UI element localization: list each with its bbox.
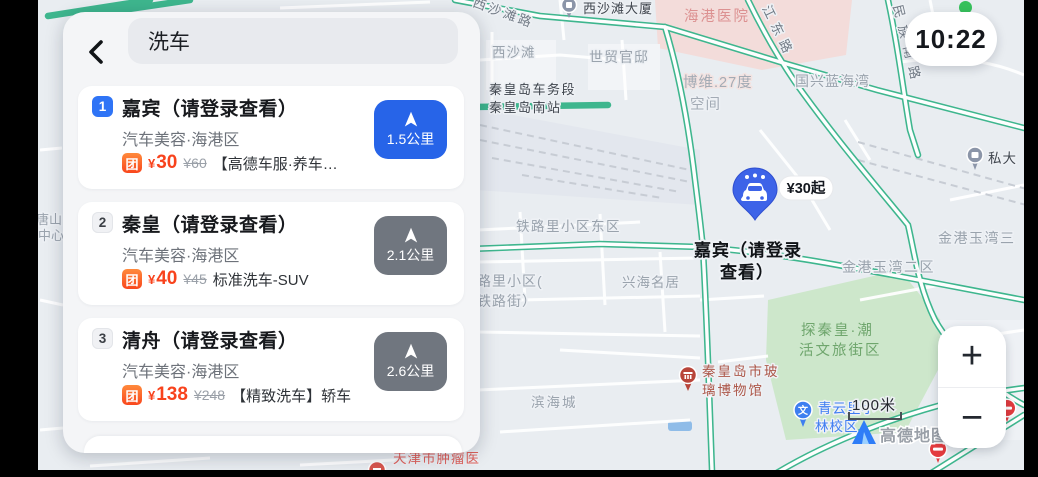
- park-label: 探秦皇·潮: [801, 322, 874, 339]
- search-box: [128, 18, 458, 64]
- poi-label: 秦皇岛车务段: [489, 82, 576, 97]
- selected-poi-label: 查看）: [719, 262, 774, 282]
- rank-badge: 2: [92, 212, 113, 233]
- price: ¥ 30: [148, 152, 177, 174]
- district-label: 滨海城: [531, 395, 578, 410]
- district-label: 金港玉湾三: [938, 230, 1016, 246]
- price-bubble[interactable]: ¥30起: [779, 176, 833, 200]
- result-card[interactable]: 2 秦皇（请登录查看） 汽车美容·海港区 团 ¥ 40 ¥45 标准洗车-SUV: [78, 202, 464, 305]
- groupbuy-badge: 团: [122, 153, 142, 173]
- navigation-arrow-icon: [401, 227, 421, 244]
- navigate-button[interactable]: 2.1公里: [374, 216, 447, 275]
- navigate-button[interactable]: 1.5公里: [374, 100, 447, 159]
- navigate-button[interactable]: 2.6公里: [374, 332, 447, 391]
- park-label: 活文旅街区: [799, 342, 882, 359]
- price-value: 138: [156, 384, 188, 406]
- selected-poi-label: 嘉宾（请登录: [693, 240, 802, 260]
- results-list: 1 嘉宾（请登录查看） 汽车美容·海港区 团 ¥ 30 ¥60 【高德车服·养车…: [78, 86, 464, 421]
- search-input[interactable]: [128, 18, 458, 64]
- museum-label: 璃博物馆: [702, 382, 764, 398]
- hospital-label: 海港医院: [684, 8, 750, 25]
- time-pill: 10:22: [905, 12, 997, 66]
- map-zoom-control: + −: [938, 326, 1006, 448]
- rank-badge: 3: [92, 328, 113, 349]
- poi-title: 秦皇（请登录查看）: [122, 210, 298, 237]
- original-price: ¥60: [183, 155, 206, 171]
- navigation-arrow-icon: [401, 343, 421, 360]
- deal-description: 【高德车服·养车…: [213, 153, 338, 174]
- currency-symbol: ¥: [148, 388, 155, 403]
- poi-label: 西沙滩大厦: [583, 1, 653, 16]
- poi-title: 清舟（请登录查看）: [122, 326, 298, 353]
- museum-label: 秦皇岛市玻: [702, 363, 780, 379]
- district-label: 西沙滩: [492, 45, 536, 60]
- district-label: 路里小区(: [477, 273, 543, 289]
- school-label: 林校区: [815, 418, 859, 434]
- clock-time: 10:22: [915, 24, 987, 55]
- price-value: 40: [156, 268, 177, 290]
- price-bubble-text: ¥30起: [787, 180, 826, 197]
- poi-category: 汽车美容·海港区: [122, 242, 239, 266]
- price: ¥ 40: [148, 268, 177, 290]
- poi-label: 私大: [988, 151, 1017, 166]
- currency-symbol: ¥: [148, 272, 155, 287]
- deal-description: 【精致洗车】轿车: [231, 385, 351, 406]
- navigation-arrow-icon: [401, 111, 421, 128]
- district-label: 金港玉湾二区: [842, 259, 935, 275]
- poi-category: 汽车美容·海港区: [122, 126, 239, 150]
- original-price: ¥45: [183, 271, 206, 287]
- district-label: 中心: [38, 228, 64, 243]
- district-label: 铁路里小区东区: [516, 219, 621, 234]
- distance-label: 2.6公里: [387, 361, 434, 381]
- distance-label: 2.1公里: [387, 245, 434, 265]
- back-chevron-icon: [81, 36, 113, 68]
- rank-badge: 1: [92, 96, 113, 117]
- district-label: 兴海名居: [622, 275, 680, 290]
- district-label: 世贸官邸: [589, 49, 649, 65]
- search-results-panel: 1 嘉宾（请登录查看） 汽车美容·海港区 团 ¥ 30 ¥60 【高德车服·养车…: [63, 12, 480, 453]
- district-label: 博维.27度: [683, 74, 753, 91]
- deal-description: 标准洗车-SUV: [213, 269, 309, 290]
- scale-text: 100米: [852, 397, 896, 414]
- original-price: ¥248: [194, 387, 225, 403]
- groupbuy-badge: 团: [122, 269, 142, 289]
- price: ¥ 138: [148, 384, 188, 406]
- district-label: 唐山: [38, 212, 62, 227]
- district-label: 铁路街）: [477, 293, 537, 309]
- app-screen: 西沙滩路 江东路 民族南路 西沙滩 世贸官邸 博维.27度 空间 国兴蓝海湾 铁…: [0, 0, 1038, 477]
- deal-row: 团 ¥ 30 ¥60 【高德车服·养车…: [122, 152, 338, 174]
- zoom-out-button[interactable]: −: [938, 387, 1006, 449]
- next-card-peek[interactable]: [84, 436, 462, 453]
- poi-label: 秦皇岛南站: [489, 100, 562, 115]
- groupbuy-badge: 团: [122, 385, 142, 405]
- distance-label: 1.5公里: [387, 129, 434, 149]
- poi-category: 汽车美容·海港区: [122, 358, 239, 382]
- poi-title: 嘉宾（请登录查看）: [122, 94, 298, 121]
- result-card[interactable]: 1 嘉宾（请登录查看） 汽车美容·海港区 团 ¥ 30 ¥60 【高德车服·养车…: [78, 86, 464, 189]
- district-label: 国兴蓝海湾: [795, 73, 870, 89]
- deal-row: 团 ¥ 138 ¥248 【精致洗车】轿车: [122, 384, 351, 406]
- deal-row: 团 ¥ 40 ¥45 标准洗车-SUV: [122, 268, 309, 290]
- result-card[interactable]: 3 清舟（请登录查看） 汽车美容·海港区 团 ¥ 138 ¥248 【精致洗车】…: [78, 318, 464, 421]
- svg-text:文: 文: [798, 404, 809, 417]
- district-label: 空间: [690, 96, 721, 113]
- back-button[interactable]: [81, 36, 113, 68]
- price-value: 30: [156, 152, 177, 174]
- currency-symbol: ¥: [148, 156, 155, 171]
- zoom-in-button[interactable]: +: [938, 326, 1006, 387]
